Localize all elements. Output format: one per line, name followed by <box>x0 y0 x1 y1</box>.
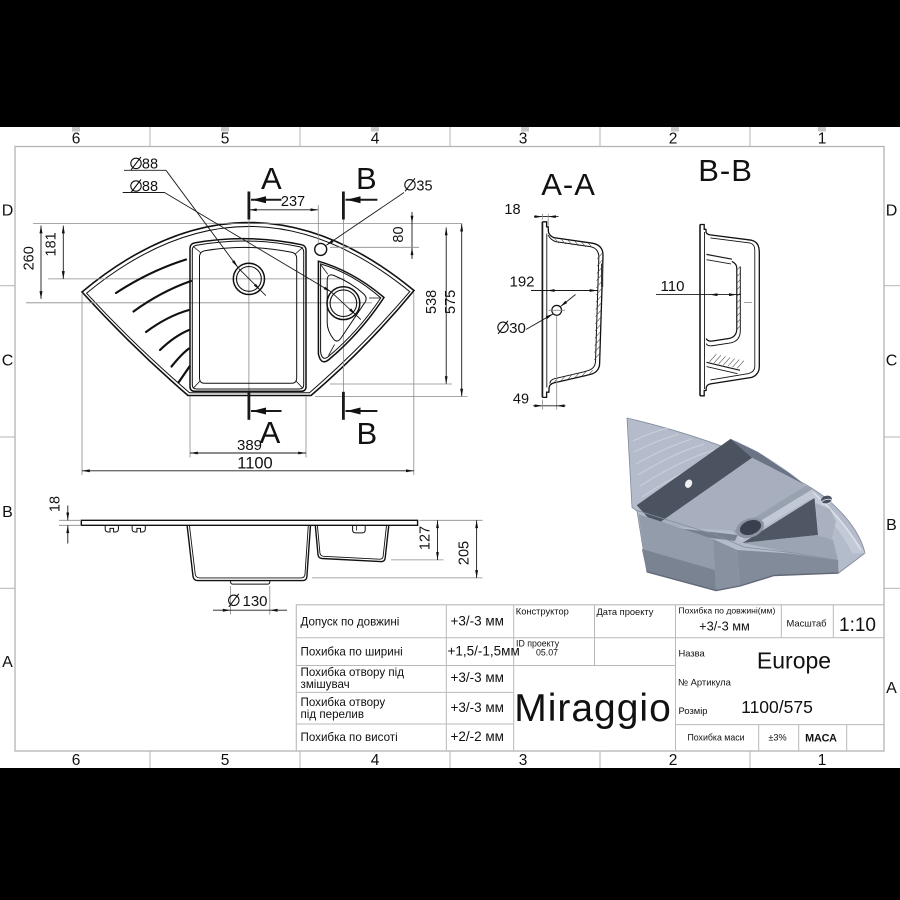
svg-text:Miraggio: Miraggio <box>514 687 672 730</box>
svg-text:110: 110 <box>661 278 685 295</box>
svg-text:+3/-3 мм: +3/-3 мм <box>451 614 504 629</box>
svg-text:18: 18 <box>504 202 520 218</box>
svg-text:127: 127 <box>418 526 434 550</box>
svg-text:1100/575: 1100/575 <box>741 697 813 717</box>
svg-text:05.07: 05.07 <box>536 648 558 658</box>
svg-text:Похибка маси: Похибка маси <box>687 733 744 743</box>
svg-text:+1,5/-1,5мм: +1,5/-1,5мм <box>448 644 520 659</box>
svg-text:Europe: Europe <box>757 648 831 674</box>
svg-text:МАСА: МАСА <box>805 733 837 745</box>
svg-text:18: 18 <box>48 496 64 512</box>
svg-text:1: 1 <box>818 752 827 769</box>
svg-text:№ Артикула: № Артикула <box>678 677 732 688</box>
svg-text:Назва: Назва <box>679 648 706 659</box>
svg-text:A: A <box>261 161 282 196</box>
svg-text:4: 4 <box>371 131 380 148</box>
svg-text:Допуск по довжині: Допуск по довжині <box>301 616 400 629</box>
svg-text:Похибка по довжині(мм): Похибка по довжині(мм) <box>679 606 776 616</box>
svg-text:80: 80 <box>391 226 407 242</box>
svg-text:Конструктор: Конструктор <box>516 607 569 617</box>
svg-text:237: 237 <box>281 194 305 210</box>
svg-text:B-B: B-B <box>698 153 753 188</box>
svg-text:389: 389 <box>237 437 262 454</box>
svg-text:Дата проекту: Дата проекту <box>597 607 654 617</box>
svg-text:Похибка по ширині: Похибка по ширині <box>301 646 403 659</box>
svg-text:192: 192 <box>509 274 534 291</box>
svg-text:35: 35 <box>416 178 432 194</box>
svg-text:D: D <box>2 203 14 220</box>
svg-text:538: 538 <box>424 290 440 314</box>
svg-text:49: 49 <box>513 392 529 408</box>
svg-text:під перелив: під перелив <box>301 708 364 721</box>
svg-text:C: C <box>886 353 898 370</box>
svg-text:1:10: 1:10 <box>839 615 876 636</box>
svg-text:C: C <box>2 353 14 370</box>
svg-text:Розмір: Розмір <box>679 705 708 716</box>
svg-text:B: B <box>886 517 897 534</box>
svg-text:±3%: ±3% <box>768 733 786 743</box>
svg-text:A-A: A-A <box>541 167 596 202</box>
svg-text:1: 1 <box>818 131 827 148</box>
svg-text:A: A <box>886 680 897 697</box>
svg-text:B: B <box>2 504 13 521</box>
svg-text:Масштаб: Масштаб <box>786 618 826 629</box>
svg-text:6: 6 <box>72 752 81 769</box>
svg-text:змішувач: змішувач <box>301 678 350 691</box>
svg-text:575: 575 <box>443 290 459 314</box>
svg-text:205: 205 <box>457 541 473 565</box>
svg-text:181: 181 <box>43 232 59 256</box>
svg-text:30: 30 <box>509 320 526 337</box>
svg-text:2: 2 <box>669 131 678 148</box>
svg-text:A: A <box>260 415 281 450</box>
svg-text:5: 5 <box>221 131 230 148</box>
svg-text:D: D <box>886 203 898 220</box>
svg-text:4: 4 <box>371 752 380 769</box>
svg-text:+3/-3 мм: +3/-3 мм <box>699 619 750 634</box>
svg-text:+2/-2 мм: +2/-2 мм <box>451 729 504 744</box>
svg-text:B: B <box>356 161 377 196</box>
svg-text:130: 130 <box>242 593 267 610</box>
svg-text:A: A <box>2 654 13 671</box>
svg-text:Похибка по висоті: Похибка по висоті <box>301 731 398 744</box>
svg-text:5: 5 <box>221 752 230 769</box>
svg-text:+3/-3 мм: +3/-3 мм <box>451 670 504 685</box>
svg-text:1100: 1100 <box>237 455 272 473</box>
svg-text:6: 6 <box>72 131 81 148</box>
svg-text:2: 2 <box>669 752 678 769</box>
svg-text:260: 260 <box>22 246 38 270</box>
svg-text:+3/-3 мм: +3/-3 мм <box>451 700 504 715</box>
svg-text:3: 3 <box>519 131 528 148</box>
svg-text:B: B <box>357 416 378 451</box>
svg-text:3: 3 <box>519 752 528 769</box>
